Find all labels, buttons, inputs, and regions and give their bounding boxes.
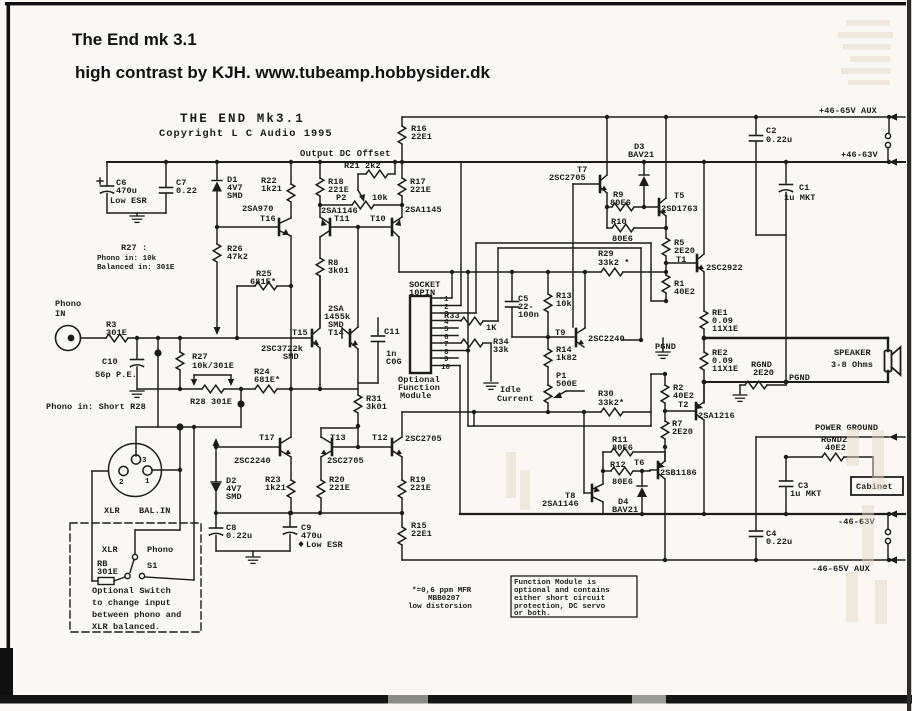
svg-text:Output DC Offset: Output DC Offset — [300, 149, 391, 159]
svg-text:SMD: SMD — [226, 492, 242, 502]
svg-text:Phono: Phono — [147, 545, 173, 555]
svg-text:2SA1146: 2SA1146 — [542, 499, 579, 509]
svg-text:22E1: 22E1 — [411, 132, 432, 142]
svg-text:1u MKT: 1u MKT — [784, 193, 816, 203]
svg-text:1K: 1K — [486, 323, 497, 333]
svg-text:10k: 10k — [556, 299, 572, 309]
svg-text:2SC2240: 2SC2240 — [234, 456, 271, 466]
svg-text:1: 1 — [444, 296, 449, 304]
svg-text:Current: Current — [497, 394, 534, 404]
svg-text:T14: T14 — [328, 328, 344, 338]
svg-text:T5: T5 — [674, 191, 685, 201]
svg-text:2SC2240: 2SC2240 — [588, 334, 625, 344]
svg-text:221E: 221E — [410, 185, 431, 195]
svg-text:high contrast by KJH. www.tube: high contrast by KJH. www.tubeamp.hobbys… — [75, 63, 491, 82]
svg-text:R10: R10 — [611, 217, 627, 227]
svg-text:3-8 Ohms: 3-8 Ohms — [831, 360, 873, 370]
svg-text:80E6: 80E6 — [612, 443, 633, 453]
svg-text:33k: 33k — [493, 345, 509, 355]
svg-text:POWER GROUND: POWER GROUND — [815, 423, 878, 433]
svg-text:+46-63V: +46-63V — [841, 150, 879, 160]
svg-text:0.22u: 0.22u — [766, 135, 792, 145]
svg-text:BAV21: BAV21 — [628, 150, 654, 160]
svg-text:9: 9 — [444, 356, 449, 364]
svg-text:40E2: 40E2 — [674, 287, 695, 297]
svg-text:R27 :: R27 : — [121, 243, 147, 253]
svg-text:to change input: to change input — [92, 598, 171, 608]
svg-text:Phono in: Short R28: Phono in: Short R28 — [46, 402, 146, 412]
svg-text:C10: C10 — [102, 357, 118, 367]
svg-text:1u MKT: 1u MKT — [790, 489, 822, 499]
svg-text:SMD: SMD — [283, 352, 299, 362]
svg-text:PGND: PGND — [789, 373, 810, 383]
svg-text:T9: T9 — [555, 328, 566, 338]
svg-text:MBB0207: MBB0207 — [428, 595, 460, 603]
svg-text:BAL.IN: BAL.IN — [139, 506, 171, 516]
svg-text:The End mk 3.1: The End mk 3.1 — [72, 30, 197, 49]
svg-text:Low ESR: Low ESR — [110, 196, 148, 206]
svg-text:2E20: 2E20 — [672, 427, 693, 437]
svg-text:100n: 100n — [518, 310, 539, 320]
svg-text:80E6: 80E6 — [612, 234, 633, 244]
svg-text:3k01: 3k01 — [328, 266, 349, 276]
svg-text:C11: C11 — [384, 327, 400, 337]
svg-text:*=0,6 ppm MFR: *=0,6 ppm MFR — [412, 587, 472, 595]
svg-text:2SD1763: 2SD1763 — [661, 204, 698, 214]
svg-text:Phono in: 10k: Phono in: 10k — [97, 255, 157, 263]
svg-text:2SA970: 2SA970 — [242, 204, 274, 214]
svg-text:301E: 301E — [97, 567, 118, 577]
svg-text:Copyright L C Audio 1995: Copyright L C Audio 1995 — [159, 128, 333, 140]
svg-text:Phono: Phono — [55, 299, 81, 309]
svg-text:5: 5 — [444, 326, 449, 334]
svg-text:10k/301E: 10k/301E — [192, 361, 234, 371]
svg-text:R33: R33 — [444, 311, 460, 321]
svg-text:+46-65V AUX: +46-65V AUX — [819, 106, 878, 116]
svg-text:T2: T2 — [678, 400, 689, 410]
svg-text:T15: T15 — [292, 328, 308, 338]
svg-text:2SC2705: 2SC2705 — [549, 173, 586, 183]
svg-text:301E: 301E — [106, 328, 127, 338]
svg-text:0.22: 0.22 — [176, 186, 197, 196]
svg-text:40E2: 40E2 — [825, 443, 846, 453]
svg-text:2SC2705: 2SC2705 — [327, 456, 364, 466]
svg-text:XLR balanced.: XLR balanced. — [92, 622, 160, 632]
svg-text:between phono and: between phono and — [92, 610, 181, 620]
svg-text:33k2 *: 33k2 * — [598, 258, 630, 268]
svg-text:P2: P2 — [336, 193, 347, 203]
svg-text:221E: 221E — [410, 483, 431, 493]
svg-text:-46-65V AUX: -46-65V AUX — [812, 564, 871, 574]
svg-text:33k2*: 33k2* — [598, 398, 624, 408]
svg-text:T6: T6 — [634, 458, 645, 468]
svg-text:SMD: SMD — [227, 191, 243, 201]
svg-text:Optional Switch: Optional Switch — [92, 586, 171, 596]
svg-text:2SA1216: 2SA1216 — [698, 411, 735, 421]
svg-text:Function Module is: Function Module is — [514, 579, 596, 587]
svg-text:1: 1 — [145, 478, 150, 486]
svg-text:R21 2k2: R21 2k2 — [344, 161, 381, 171]
svg-text:T12: T12 — [372, 433, 388, 443]
svg-text:2SC2922: 2SC2922 — [706, 263, 743, 273]
svg-text:80E6: 80E6 — [612, 477, 633, 487]
svg-text:11X1E: 11X1E — [712, 324, 738, 334]
svg-text:22E1: 22E1 — [411, 529, 432, 539]
svg-text:1k82: 1k82 — [556, 353, 577, 363]
svg-text:or both.: or both. — [514, 610, 550, 618]
svg-text:T11: T11 — [334, 214, 350, 224]
svg-text:T10: T10 — [370, 214, 386, 224]
svg-text:T16: T16 — [260, 214, 276, 224]
svg-text:1k21: 1k21 — [261, 184, 282, 194]
svg-text:PGND: PGND — [655, 342, 676, 352]
svg-text:C1: C1 — [799, 183, 810, 193]
svg-text:optional and contains: optional and contains — [514, 587, 610, 595]
svg-text:IN: IN — [55, 309, 66, 319]
svg-text:R28 301E: R28 301E — [190, 397, 232, 407]
svg-text:T13: T13 — [330, 433, 346, 443]
svg-text:3: 3 — [142, 457, 147, 465]
svg-text:SPEAKER: SPEAKER — [834, 348, 872, 358]
svg-text:XLR: XLR — [102, 545, 119, 555]
svg-text:low distorsion: low distorsion — [408, 603, 472, 611]
svg-text:3k01: 3k01 — [366, 402, 387, 412]
svg-text:0.22u: 0.22u — [766, 537, 792, 547]
svg-text:2SC2705: 2SC2705 — [405, 434, 442, 444]
svg-text:681E*: 681E* — [254, 375, 280, 385]
svg-text:221E: 221E — [329, 483, 350, 493]
svg-text:2: 2 — [119, 479, 124, 487]
svg-text:500E: 500E — [556, 379, 577, 389]
svg-text:2E20: 2E20 — [753, 368, 774, 378]
svg-text:470u: 470u — [116, 186, 137, 196]
svg-text:80E6: 80E6 — [610, 198, 631, 208]
svg-text:681E*: 681E* — [250, 277, 276, 287]
svg-text:11X1E: 11X1E — [712, 364, 738, 374]
svg-text:R12: R12 — [610, 460, 626, 470]
svg-text:2SA1145: 2SA1145 — [405, 205, 442, 215]
svg-text:T17: T17 — [259, 433, 275, 443]
svg-text:Balanced in: 301E: Balanced in: 301E — [97, 264, 175, 272]
svg-text:S1: S1 — [147, 561, 158, 571]
svg-text:10k: 10k — [372, 193, 388, 203]
svg-text:XLR: XLR — [104, 506, 121, 516]
svg-text:T1: T1 — [676, 255, 687, 265]
svg-text:2SB1186: 2SB1186 — [660, 468, 697, 478]
svg-text:C0G: C0G — [386, 357, 402, 367]
svg-text:0.22u: 0.22u — [226, 531, 252, 541]
svg-text:Module: Module — [400, 391, 432, 401]
svg-text:THE END Mk3.1: THE END Mk3.1 — [180, 112, 305, 126]
svg-text:47k2: 47k2 — [227, 252, 248, 262]
svg-text:Low ESR: Low ESR — [306, 540, 344, 550]
svg-text:either short circuit: either short circuit — [514, 595, 605, 603]
svg-text:56p P.E.: 56p P.E. — [95, 370, 137, 380]
svg-text:1k21: 1k21 — [265, 483, 286, 493]
svg-text:7: 7 — [444, 341, 449, 349]
